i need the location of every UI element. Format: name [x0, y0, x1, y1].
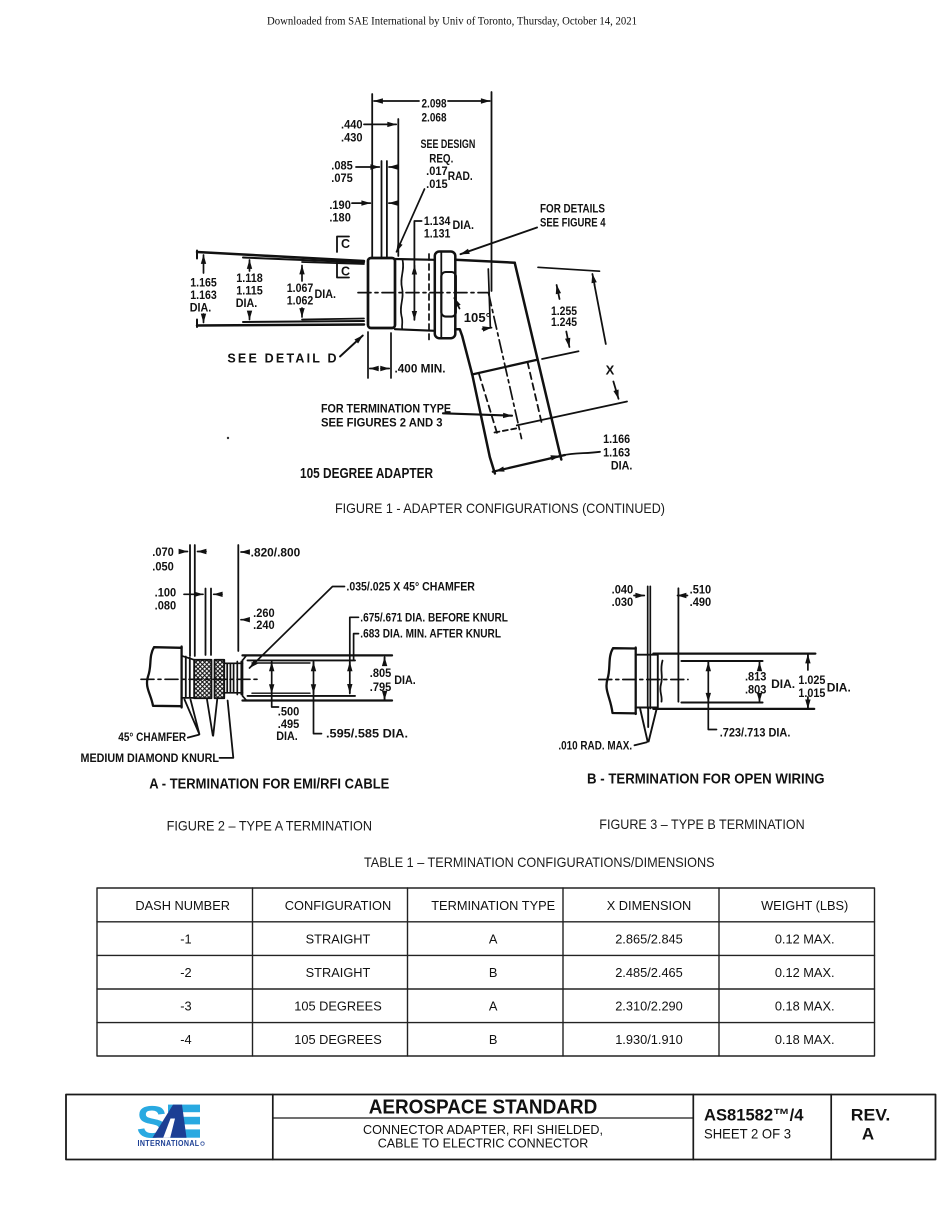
svg-text:SEE FIGURE 4: SEE FIGURE 4 [540, 218, 606, 230]
svg-text:SEE FIGURES 2 AND 3: SEE FIGURES 2 AND 3 [321, 418, 443, 430]
svg-text:.240: .240 [253, 620, 275, 632]
svg-text:1.115: 1.115 [236, 286, 263, 298]
svg-text:TERMINATION TYPE: TERMINATION TYPE [431, 898, 555, 913]
svg-text:105 DEGREES: 105 DEGREES [294, 1032, 382, 1047]
svg-text:.035/.025 X 45° CHAMFER: .035/.025 X 45° CHAMFER [346, 581, 475, 593]
svg-text:AS81582™/4: AS81582™/4 [704, 1105, 804, 1124]
svg-text:.100: .100 [155, 588, 177, 600]
svg-text:.017: .017 [426, 166, 448, 178]
svg-text:MEDIUM DIAMOND KNURL: MEDIUM DIAMOND KNURL [81, 753, 220, 765]
svg-text:.803: .803 [745, 685, 767, 697]
svg-text:1.118: 1.118 [236, 273, 263, 285]
svg-text:.030: .030 [612, 597, 634, 609]
svg-text:1.134: 1.134 [424, 216, 451, 228]
svg-text:105 DEGREE ADAPTER: 105 DEGREE ADAPTER [300, 465, 433, 482]
svg-text:DIA.: DIA. [771, 679, 795, 691]
svg-text:.813: .813 [745, 671, 767, 683]
svg-text:A: A [862, 1124, 874, 1143]
svg-text:RAD.: RAD. [448, 171, 473, 183]
svg-text:WEIGHT (LBS): WEIGHT (LBS) [761, 898, 848, 913]
svg-text:1.067: 1.067 [287, 283, 314, 295]
svg-text:.795: .795 [370, 682, 392, 694]
svg-text:B: B [489, 965, 498, 980]
svg-text:.015: .015 [426, 179, 448, 191]
svg-text:A: A [489, 931, 498, 946]
svg-text:.400 MIN.: .400 MIN. [395, 364, 446, 376]
svg-text:CONFIGURATION: CONFIGURATION [285, 898, 391, 913]
svg-text:B - TERMINATION FOR OPEN WIRIN: B - TERMINATION FOR OPEN WIRING [587, 771, 825, 788]
svg-text:-2: -2 [180, 965, 191, 980]
svg-text:-1: -1 [180, 931, 191, 946]
svg-text:0.12 MAX.: 0.12 MAX. [775, 965, 835, 980]
svg-text:.595/.585 DIA.: .595/.585 DIA. [326, 729, 408, 741]
svg-text:1.131: 1.131 [424, 229, 451, 241]
svg-text:.050: .050 [152, 561, 174, 573]
svg-text:2.485/2.465: 2.485/2.465 [615, 965, 683, 980]
svg-text:2.098: 2.098 [422, 98, 448, 110]
svg-text:-3: -3 [180, 999, 191, 1014]
svg-text:C: C [341, 264, 350, 278]
svg-text:1.163: 1.163 [603, 447, 630, 459]
svg-text:B: B [489, 1032, 498, 1047]
svg-text:.510: .510 [690, 584, 712, 596]
svg-text:C: C [341, 237, 350, 251]
svg-text:1.165: 1.165 [190, 278, 217, 290]
svg-text:0.12 MAX.: 0.12 MAX. [775, 931, 835, 946]
svg-text:2.310/2.290: 2.310/2.290 [615, 999, 683, 1014]
svg-text:1.166: 1.166 [603, 434, 630, 446]
svg-text:AEROSPACE STANDARD: AEROSPACE STANDARD [369, 1095, 598, 1118]
svg-text:X: X [606, 363, 615, 378]
svg-text:.440: .440 [341, 120, 363, 132]
svg-text:FOR DETAILS: FOR DETAILS [540, 204, 605, 216]
svg-text:.180: .180 [329, 213, 351, 225]
svg-text:TABLE 1 – TERMINATION CONFIGUR: TABLE 1 – TERMINATION CONFIGURATIONS/DIM… [364, 854, 715, 870]
svg-text:DIA.: DIA. [190, 302, 212, 314]
svg-text:.430: .430 [341, 133, 363, 145]
svg-text:DIA.: DIA. [276, 731, 298, 743]
svg-text:SEE DESIGN: SEE DESIGN [421, 139, 476, 151]
svg-text:SEE DETAIL D: SEE DETAIL D [227, 352, 338, 366]
svg-text:0.18 MAX.: 0.18 MAX. [775, 1032, 835, 1047]
svg-text:1.245: 1.245 [551, 317, 578, 329]
svg-text:.683 DIA. MIN. AFTER KNURL: .683 DIA. MIN. AFTER KNURL [360, 629, 501, 641]
svg-text:CABLE TO ELECTRIC CONNECTOR: CABLE TO ELECTRIC CONNECTOR [378, 1136, 589, 1151]
svg-text:STRAIGHT: STRAIGHT [306, 931, 371, 946]
svg-text:A: A [489, 999, 498, 1014]
svg-text:A - TERMINATION FOR EMI/RFI CA: A - TERMINATION FOR EMI/RFI CABLE [149, 776, 389, 793]
svg-text:SHEET 2 OF 3: SHEET 2 OF 3 [704, 1125, 791, 1141]
svg-text:REQ.: REQ. [429, 154, 453, 166]
svg-text:.260: .260 [253, 608, 275, 620]
svg-text:105°: 105° [464, 310, 491, 325]
svg-text:DIA.: DIA. [611, 460, 633, 472]
svg-text:DIA.: DIA. [315, 289, 337, 301]
svg-text:.495: .495 [278, 719, 300, 731]
svg-text:.010 RAD. MAX.: .010 RAD. MAX. [558, 741, 632, 753]
svg-text:.500: .500 [278, 707, 300, 719]
svg-text:X DIMENSION: X DIMENSION [607, 898, 692, 913]
svg-text:FIGURE 2 – TYPE A TERMINATION: FIGURE 2 – TYPE A TERMINATION [167, 818, 372, 834]
svg-text:.040: .040 [612, 584, 634, 596]
svg-text:REV.: REV. [851, 1105, 891, 1124]
svg-text:FIGURE 3 – TYPE B TERMINATION: FIGURE 3 – TYPE B TERMINATION [599, 816, 804, 832]
svg-text:1.163: 1.163 [190, 290, 217, 302]
svg-text:DIA.: DIA. [827, 682, 851, 694]
svg-text:-4: -4 [180, 1032, 191, 1047]
svg-text:.675/.671 DIA. BEFORE KNURL: .675/.671 DIA. BEFORE KNURL [360, 612, 508, 624]
svg-text:.820/.800: .820/.800 [251, 548, 301, 560]
svg-text:1.025: 1.025 [798, 675, 826, 687]
svg-text:45° CHAMFER: 45° CHAMFER [118, 732, 186, 744]
svg-text:.723/.713 DIA.: .723/.713 DIA. [720, 728, 791, 740]
svg-text:1.930/1.910: 1.930/1.910 [615, 1032, 683, 1047]
svg-text:FOR TERMINATION TYPE: FOR TERMINATION TYPE [321, 404, 451, 416]
svg-text:DIA.: DIA. [236, 298, 258, 310]
svg-text:Downloaded from SAE Internatio: Downloaded from SAE International by Uni… [267, 16, 637, 28]
svg-text:105 DEGREES: 105 DEGREES [294, 999, 382, 1014]
svg-text:1.015: 1.015 [798, 688, 826, 700]
svg-text:.085: .085 [331, 161, 353, 173]
svg-text:.070: .070 [152, 547, 174, 559]
svg-text:1.062: 1.062 [287, 296, 314, 308]
svg-text:.490: .490 [690, 597, 712, 609]
svg-text:.190: .190 [329, 200, 351, 212]
svg-text:INTERNATIONAL: INTERNATIONAL [138, 1139, 200, 1148]
svg-text:.075: .075 [331, 173, 353, 185]
svg-text:2.865/2.845: 2.865/2.845 [615, 931, 683, 946]
svg-text:0.18 MAX.: 0.18 MAX. [775, 999, 835, 1014]
svg-text:DIA.: DIA. [453, 220, 475, 232]
svg-text:STRAIGHT: STRAIGHT [306, 965, 371, 980]
svg-text:.805: .805 [370, 668, 392, 680]
svg-text:DASH NUMBER: DASH NUMBER [135, 898, 230, 913]
svg-text:DIA.: DIA. [394, 675, 416, 687]
svg-text:2.068: 2.068 [422, 112, 448, 124]
svg-text:FIGURE 1 - ADAPTER CONFIGURATI: FIGURE 1 - ADAPTER CONFIGURATIONS (CONTI… [335, 500, 665, 516]
svg-text:.080: .080 [155, 601, 177, 613]
